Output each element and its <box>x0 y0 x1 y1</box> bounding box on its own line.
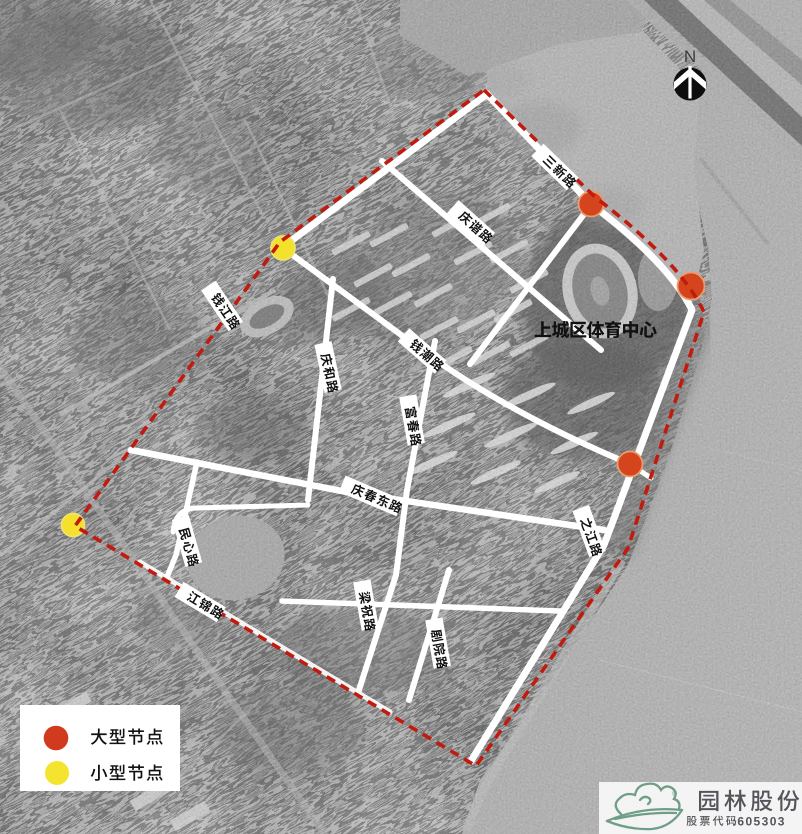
svg-text:®: ® <box>672 790 678 798</box>
svg-text::605303: :605303 <box>732 815 786 829</box>
svg-text:N: N <box>684 47 696 66</box>
